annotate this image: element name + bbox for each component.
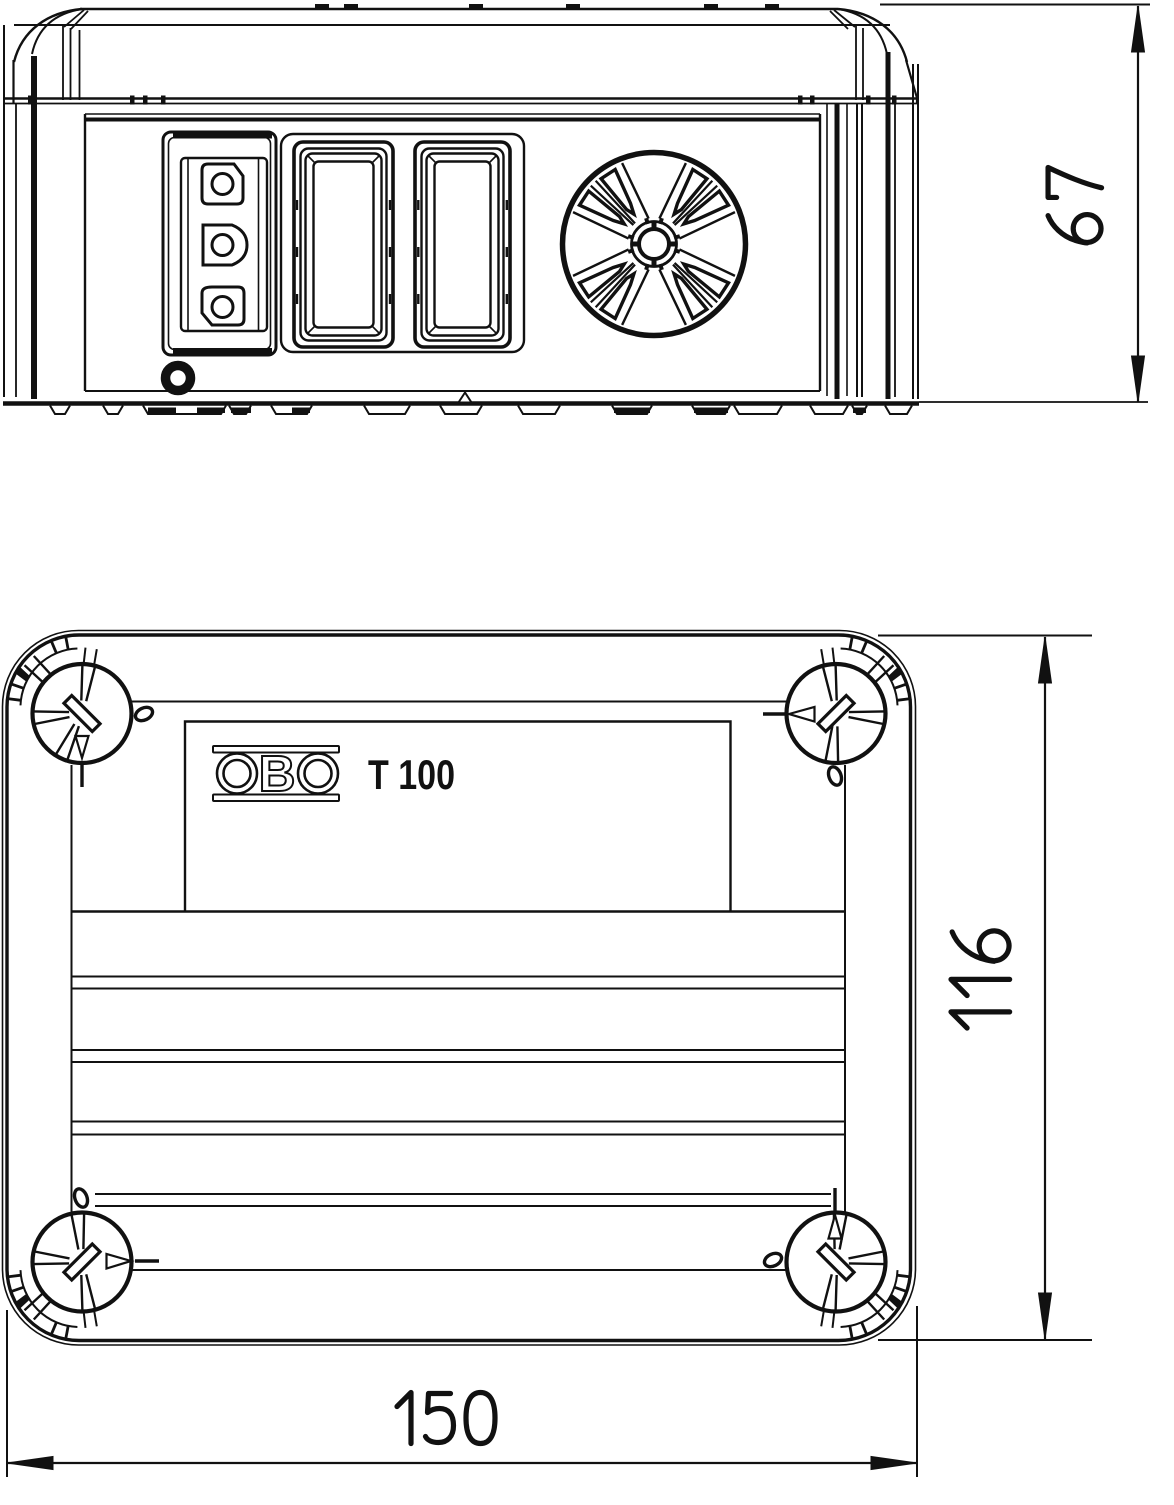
svg-text:T 100: T 100 <box>368 751 455 798</box>
svg-text:B: B <box>259 745 296 802</box>
